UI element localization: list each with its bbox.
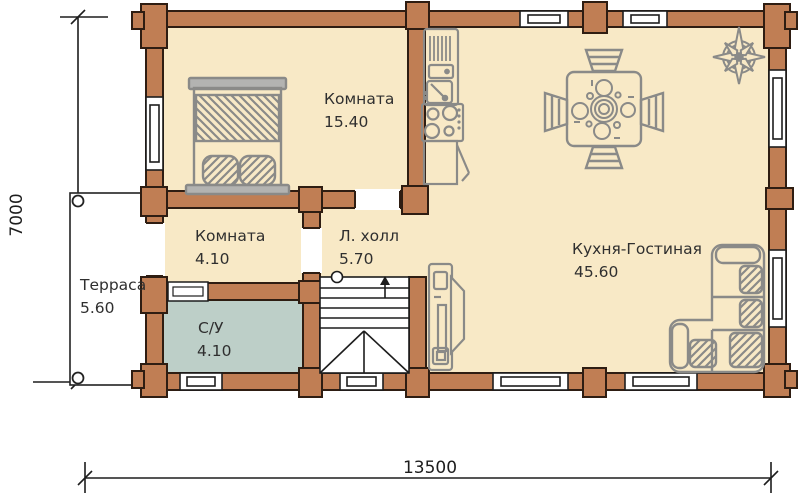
newel-post bbox=[332, 272, 343, 283]
room-area-bathroom: 4.10 bbox=[197, 342, 232, 360]
room-label-bathroom: С/У bbox=[198, 319, 224, 337]
room-area-kitchen-living: 45.60 bbox=[574, 263, 618, 281]
window bbox=[769, 70, 786, 147]
floor-plan: 7000 13500 bbox=[0, 0, 800, 497]
window bbox=[340, 373, 383, 390]
door-opening-hall bbox=[355, 189, 400, 210]
window bbox=[146, 97, 163, 170]
room-area-hall: 5.70 bbox=[339, 250, 374, 268]
window bbox=[769, 250, 786, 327]
room-area-terrace: 5.60 bbox=[80, 299, 115, 317]
room-area-bedroom: 15.40 bbox=[324, 113, 368, 131]
room-label-kitchen-living: Кухня-Гостиная bbox=[572, 240, 702, 258]
dimension-height-label: 7000 bbox=[7, 193, 27, 236]
bathroom-floor bbox=[163, 300, 303, 373]
room-label-terrace: Терраса bbox=[79, 276, 146, 294]
floor-plan-page: 7000 13500 bbox=[0, 0, 800, 497]
window bbox=[520, 11, 568, 27]
room-label-bedroom: Комната bbox=[324, 90, 394, 108]
door-opening-room bbox=[301, 228, 322, 273]
window bbox=[625, 373, 697, 390]
dimension-width-label: 13500 bbox=[403, 458, 457, 478]
terrace-post bbox=[73, 196, 84, 207]
stairs-icon bbox=[320, 272, 409, 374]
room-label-hall: Л. холл bbox=[339, 227, 399, 245]
window bbox=[493, 373, 568, 390]
door-opening-terrace bbox=[144, 223, 165, 276]
wall-stairs-right bbox=[409, 277, 426, 373]
window bbox=[180, 373, 222, 390]
door-opening-bathroom bbox=[168, 282, 208, 301]
room-label-entry: Комната bbox=[195, 227, 265, 245]
wall-bathroom-right bbox=[303, 300, 320, 373]
window bbox=[623, 11, 667, 27]
room-area-entry: 4.10 bbox=[195, 250, 230, 268]
terrace-post bbox=[73, 373, 84, 384]
